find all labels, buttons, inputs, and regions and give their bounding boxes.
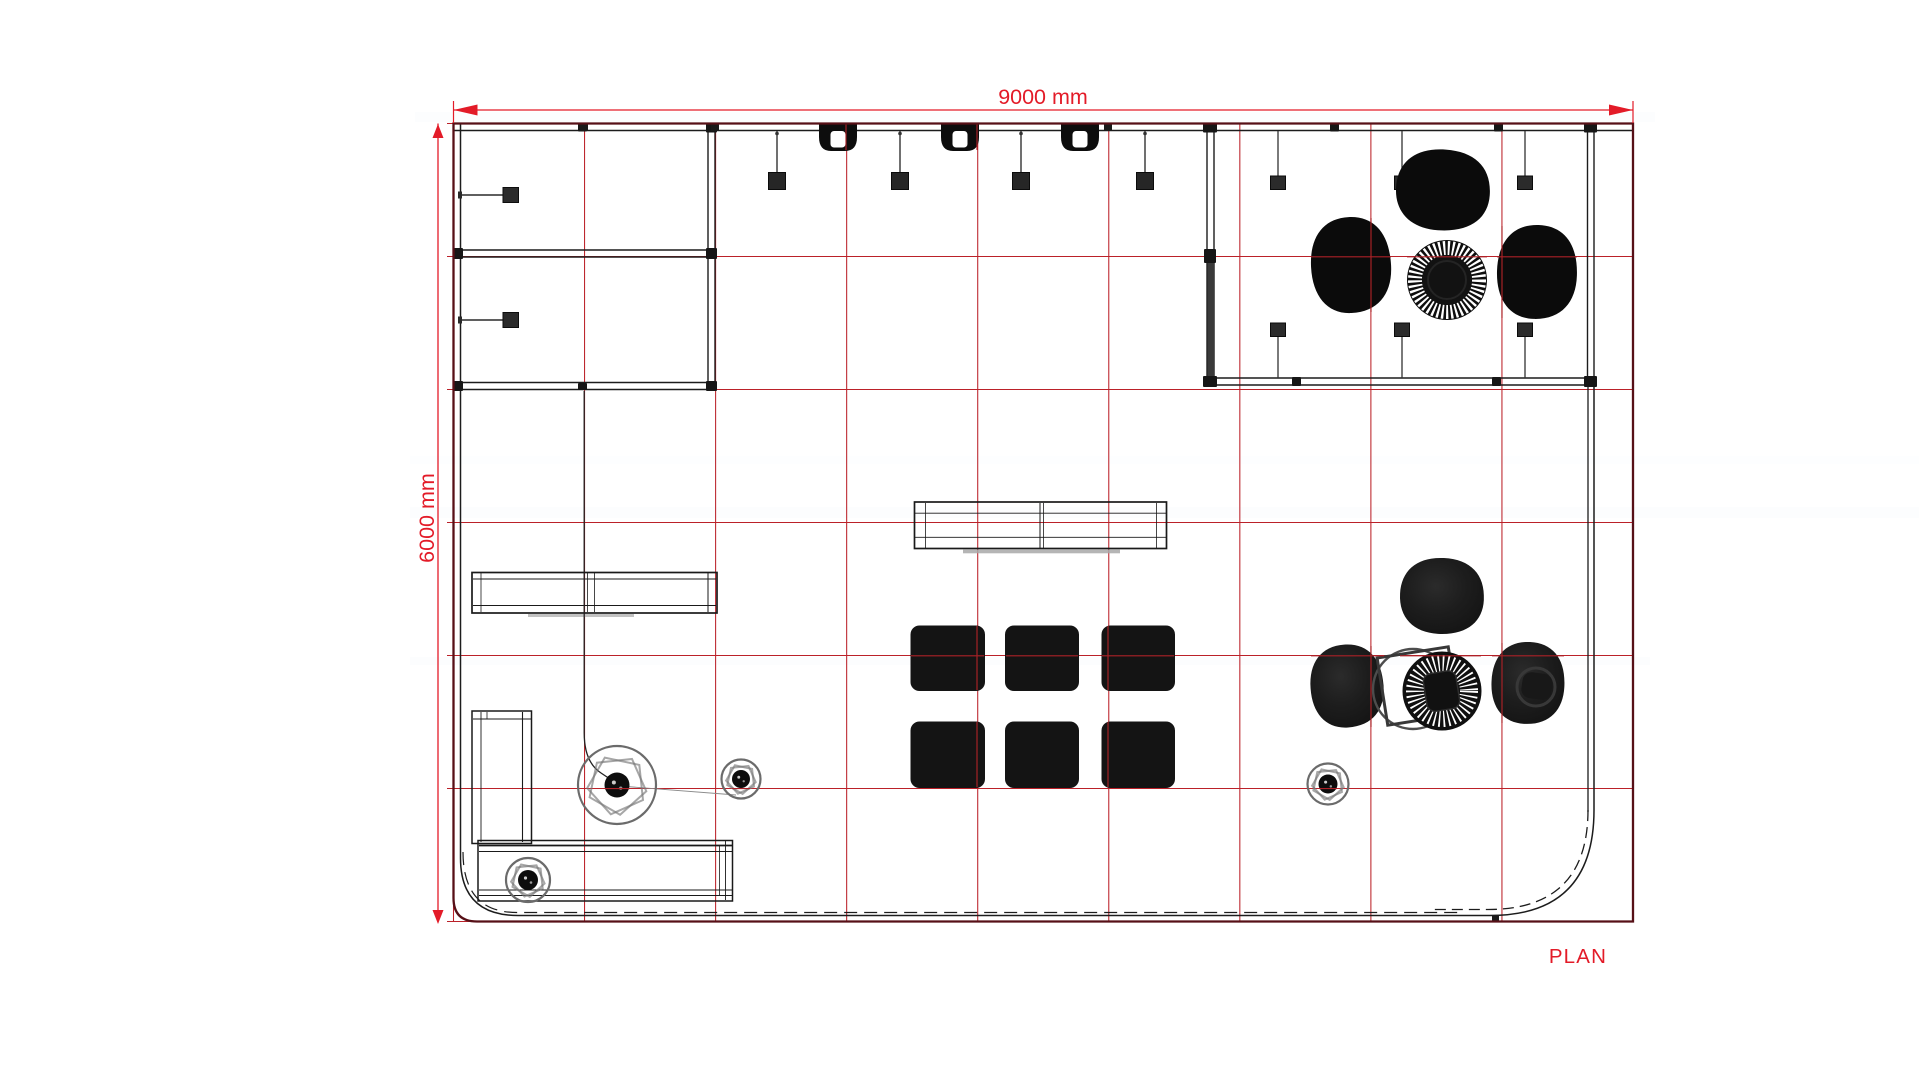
svg-text:9000 mm: 9000 mm	[998, 85, 1088, 109]
svg-text:PLAN: PLAN	[1549, 945, 1607, 968]
svg-text:6000 mm: 6000 mm	[415, 473, 439, 563]
